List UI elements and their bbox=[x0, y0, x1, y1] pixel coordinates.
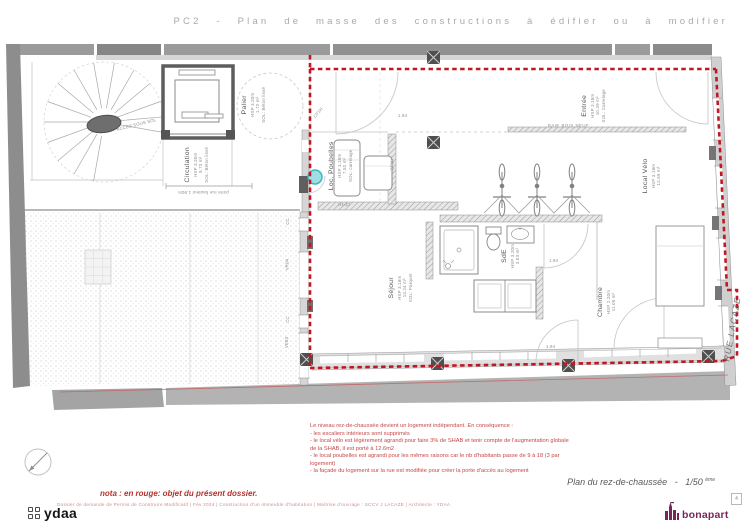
plan-sheet: PC2 - Plan de masse des constructions à … bbox=[0, 0, 750, 530]
nota-red-text: nota : en rouge: objet du présent dossie… bbox=[100, 489, 257, 498]
bicycles bbox=[484, 164, 590, 216]
bonapart-logo: bonapart bbox=[664, 501, 729, 521]
stair-newel bbox=[86, 113, 122, 135]
courtyard-grid-box bbox=[85, 250, 111, 284]
south-facade bbox=[310, 346, 726, 370]
furniture bbox=[474, 226, 704, 348]
modification-notes: Le niveau rez-de-chaussée devient un log… bbox=[310, 423, 572, 476]
note-line: - le local poubelles est agrandi pour le… bbox=[310, 453, 572, 468]
bonapart-building-icon bbox=[664, 501, 680, 521]
ydaa-grid-icon bbox=[28, 507, 40, 519]
plan-title: Plan du rez-de-chaussée - 1/50 ème bbox=[520, 477, 715, 487]
turning-circle bbox=[237, 73, 303, 139]
trash-bins bbox=[334, 140, 392, 196]
ydaa-logo: ydaa bbox=[28, 505, 77, 521]
note-line: - la façade du logement sur la rue est m… bbox=[310, 468, 572, 476]
plan-scale: 1/50 bbox=[685, 477, 703, 487]
north-arrow bbox=[25, 449, 51, 475]
bench bbox=[658, 338, 702, 348]
note-line: Le niveau rez-de-chaussée devient un log… bbox=[310, 423, 572, 431]
plan-title-text: Plan du rez-de-chaussée bbox=[567, 477, 667, 487]
elevator bbox=[161, 66, 235, 139]
note-line: - le local vélo est légèrement agrandi p… bbox=[310, 438, 572, 453]
modification-outline bbox=[310, 55, 737, 368]
plan-title-sep: - bbox=[675, 477, 678, 487]
page-number-box: 4 bbox=[731, 493, 742, 505]
courtyard bbox=[24, 210, 300, 386]
ydaa-logo-text: ydaa bbox=[44, 505, 77, 521]
bonapart-logo-text: bonapart bbox=[682, 509, 729, 521]
toilet bbox=[486, 227, 501, 234]
columns bbox=[300, 51, 715, 372]
spiral-staircase bbox=[44, 62, 164, 182]
dossier-footer-line: Dossier de demande de Permis de Construi… bbox=[57, 502, 450, 507]
bed bbox=[656, 226, 704, 306]
note-line: - les escaliers intérieurs sont supprimé… bbox=[310, 431, 572, 439]
bathroom-fixtures bbox=[440, 226, 534, 274]
plan-scale-sup: ème bbox=[705, 477, 715, 483]
